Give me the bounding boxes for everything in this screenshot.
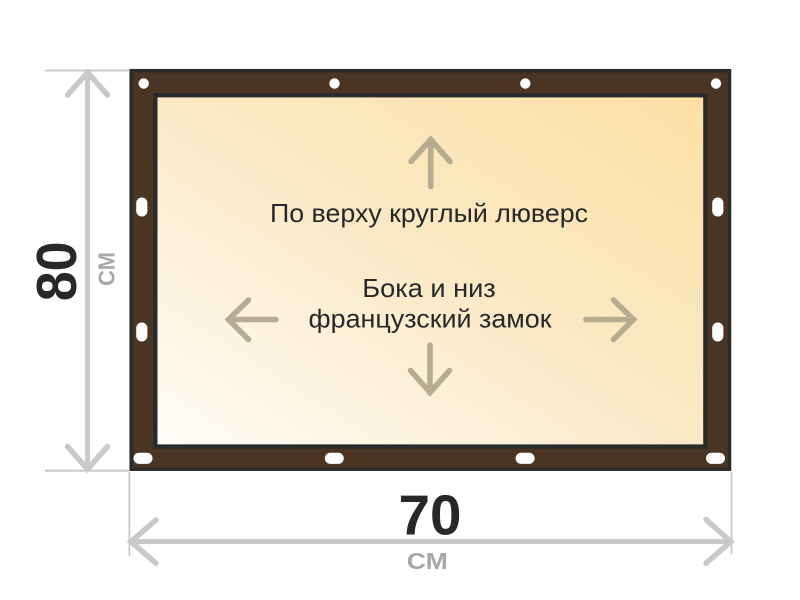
svg-text:СМ: СМ	[94, 252, 120, 286]
svg-text:Бока и низ: Бока и низ	[362, 273, 496, 303]
svg-text:По верху круглый люверс: По верху круглый люверс	[270, 198, 588, 228]
svg-text:70: 70	[399, 484, 462, 548]
svg-text:80: 80	[25, 241, 89, 301]
svg-text:СМ: СМ	[407, 548, 448, 574]
svg-text:французский замок: французский замок	[309, 304, 553, 334]
